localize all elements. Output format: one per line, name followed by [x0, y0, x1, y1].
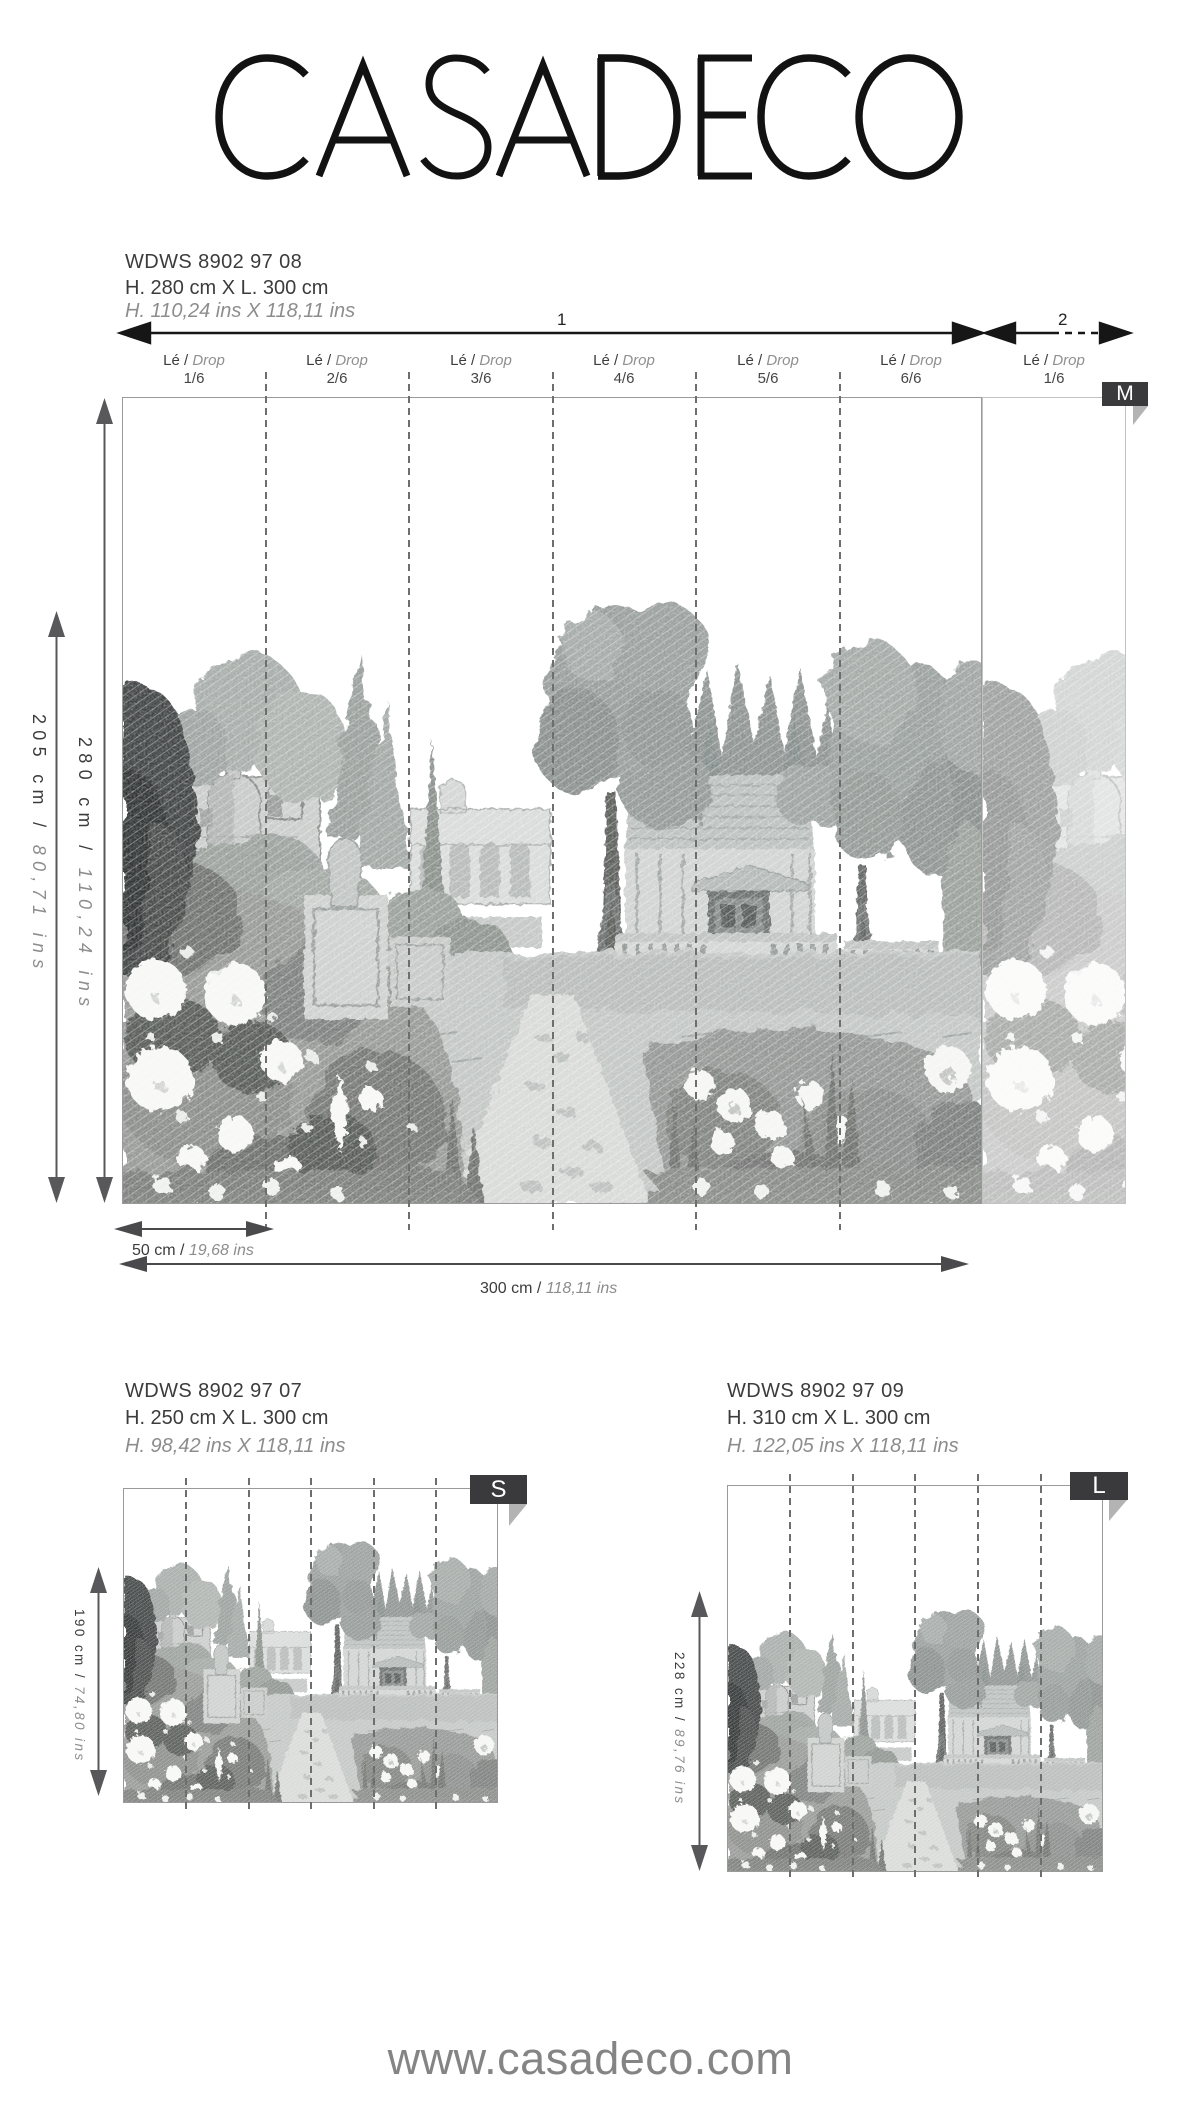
svg-text:1: 1: [557, 310, 566, 329]
svg-text:2: 2: [1058, 310, 1067, 329]
